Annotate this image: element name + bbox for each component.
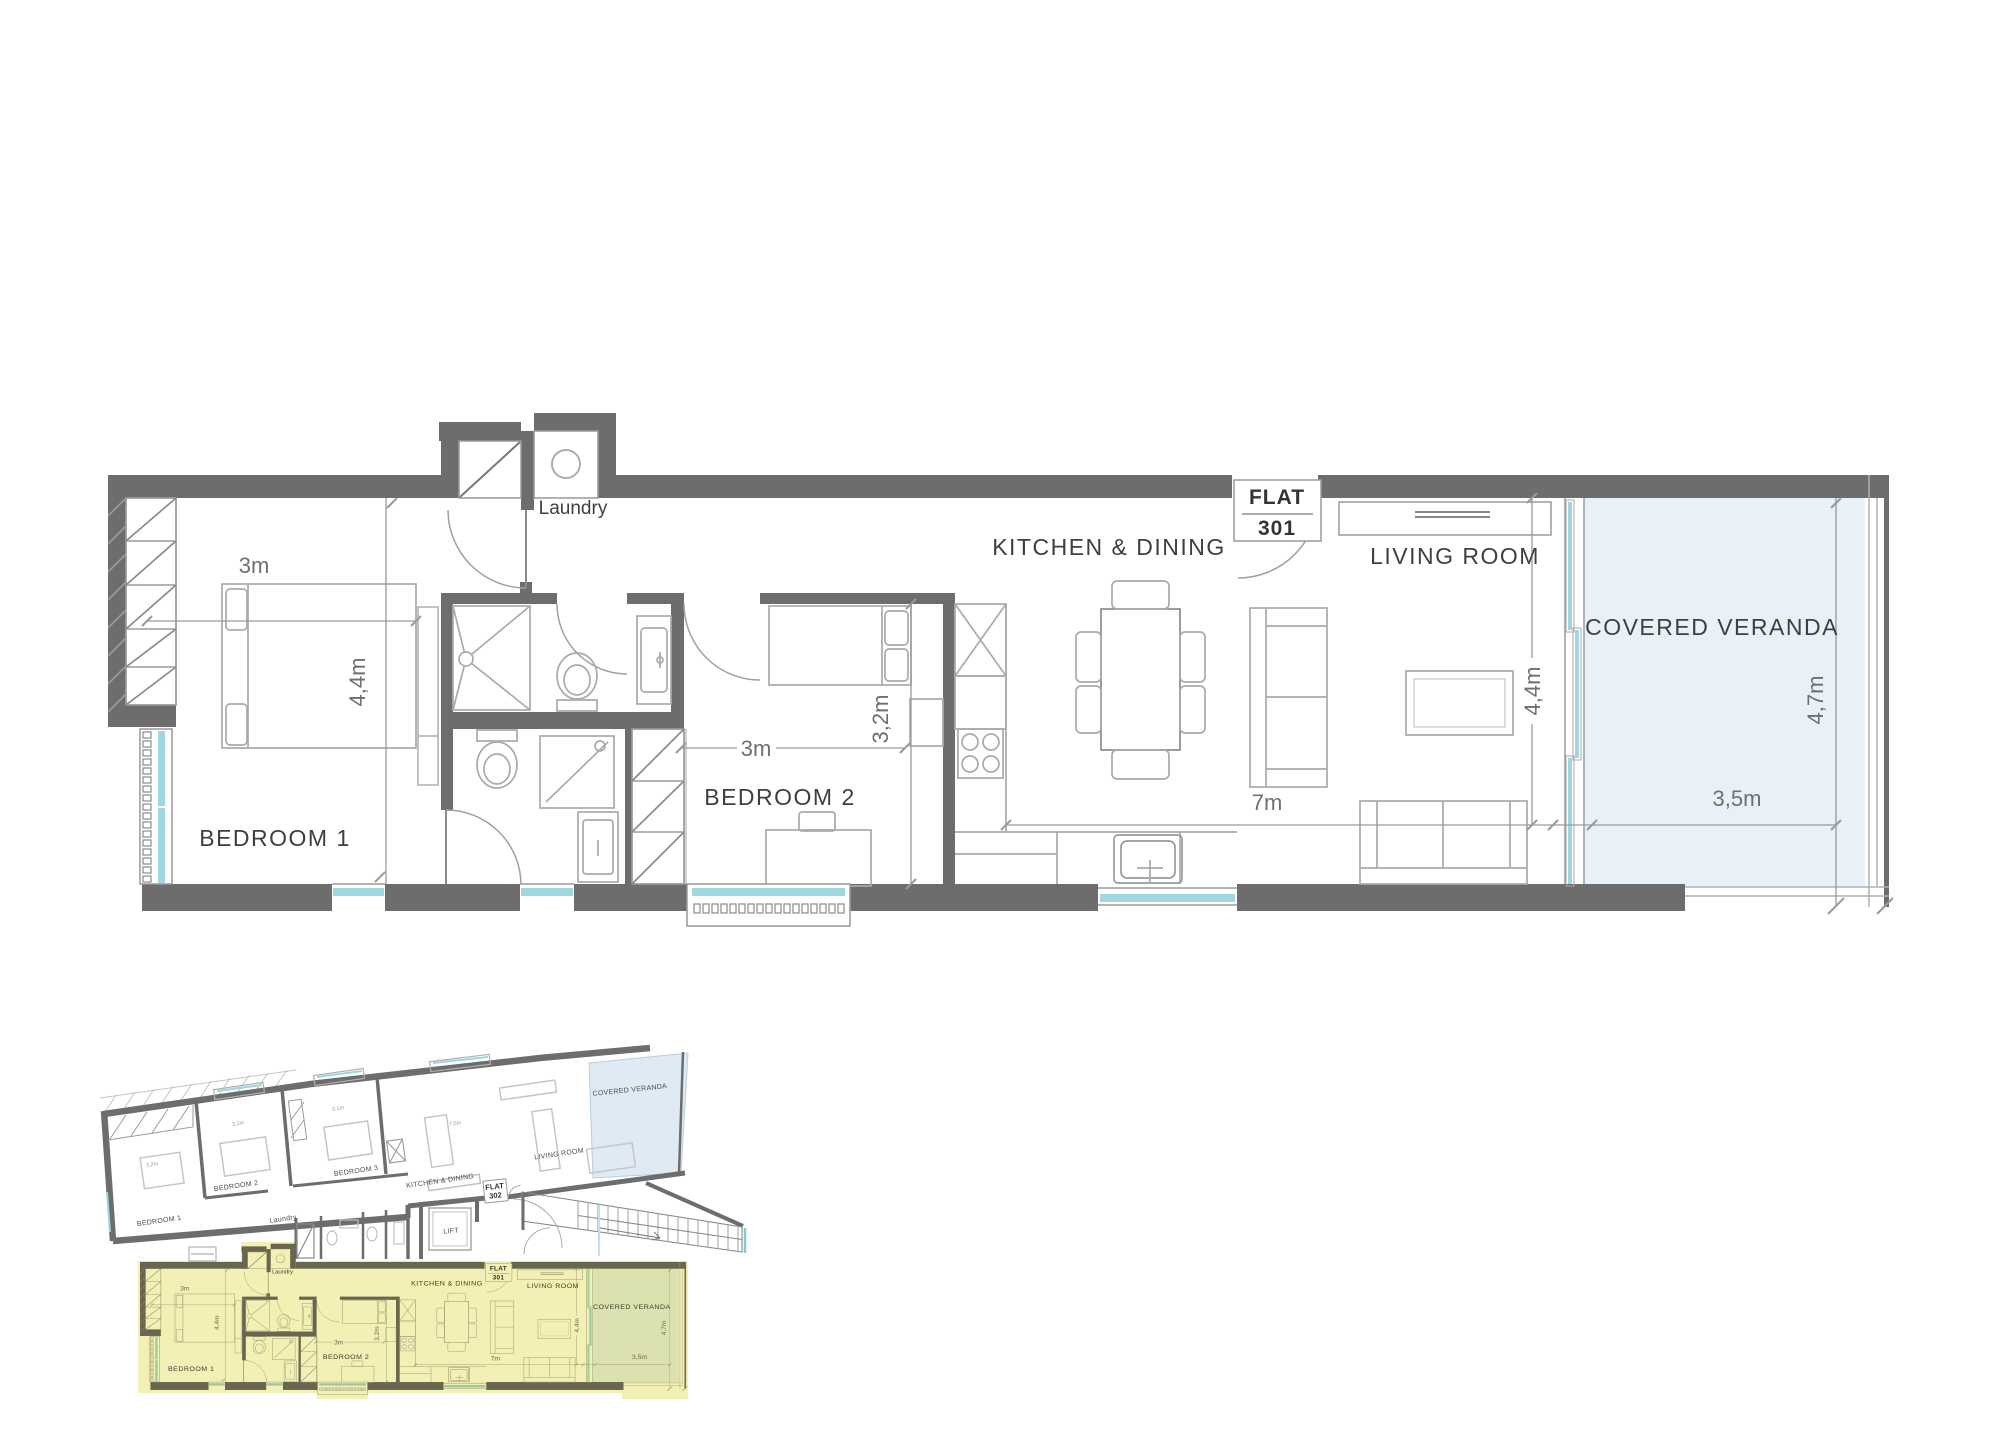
svg-text:302: 302 [489,1190,502,1200]
svg-text:LIFT: LIFT [443,1227,460,1235]
